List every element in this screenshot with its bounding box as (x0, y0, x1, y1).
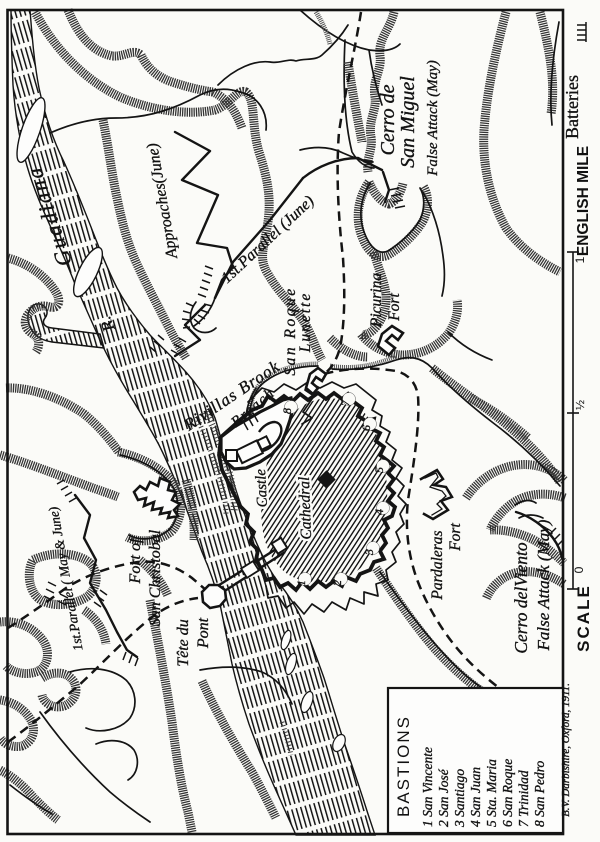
svg-text:ENGLISH MILE: ENGLISH MILE (575, 146, 592, 256)
svg-text:4: 4 (372, 509, 386, 515)
svg-text:B.V. Darbishire, Oxford, 1911.: B.V. Darbishire, Oxford, 1911. (560, 683, 572, 817)
svg-text:Picurina: Picurina (368, 273, 385, 328)
svg-text:7 Trinidad: 7 Trinidad (516, 770, 531, 827)
svg-text:8 San Pedro: 8 San Pedro (532, 761, 547, 827)
svg-text:False Attack (May): False Attack (May) (534, 519, 553, 651)
svg-text:2: 2 (330, 580, 344, 586)
svg-text:5 Sta. Maria: 5 Sta. Maria (484, 759, 499, 827)
svg-text:7: 7 (338, 399, 352, 406)
svg-text:Castle: Castle (253, 468, 271, 507)
svg-text:0: 0 (572, 566, 586, 573)
svg-text:3: 3 (362, 549, 376, 556)
svg-text:San Miguel: San Miguel (397, 76, 419, 168)
svg-text:4 San Juan: 4 San Juan (468, 767, 483, 827)
svg-text:Pardaleras: Pardaleras (429, 530, 446, 600)
svg-text:Cathedral: Cathedral (296, 476, 315, 539)
svg-text:SCALE: SCALE (574, 584, 593, 652)
svg-text:1 San Vincente: 1 San Vincente (420, 747, 435, 827)
svg-text:1: 1 (294, 580, 308, 586)
svg-text:Fort of: Fort of (127, 536, 144, 584)
svg-text:3 Santiago: 3 Santiago (452, 769, 467, 828)
svg-text:2 San José: 2 San José (436, 768, 451, 827)
svg-text:BASTIONS: BASTIONS (394, 715, 413, 817)
svg-text:Cerro delViento: Cerro delViento (511, 542, 531, 654)
svg-text:½: ½ (573, 400, 587, 410)
svg-text:5: 5 (372, 467, 386, 473)
svg-text:8: 8 (280, 408, 294, 414)
svg-text:Pont: Pont (195, 617, 212, 649)
svg-text:Fort: Fort (447, 523, 464, 552)
svg-text:1: 1 (573, 256, 587, 263)
svg-text:False Attack (May): False Attack (May) (425, 60, 441, 177)
svg-text:Lunette: Lunette (297, 292, 314, 354)
svg-text:6: 6 (359, 425, 373, 431)
svg-text:Fort: Fort (386, 293, 403, 322)
svg-text:Cerro de: Cerro de (377, 84, 399, 155)
svg-text:Tête du: Tête du (175, 619, 192, 667)
svg-text:6 San Roque: 6 San Roque (500, 759, 515, 827)
svg-text:Batteries: Batteries (562, 75, 582, 139)
svg-text:San Christobal: San Christobal (147, 529, 164, 626)
